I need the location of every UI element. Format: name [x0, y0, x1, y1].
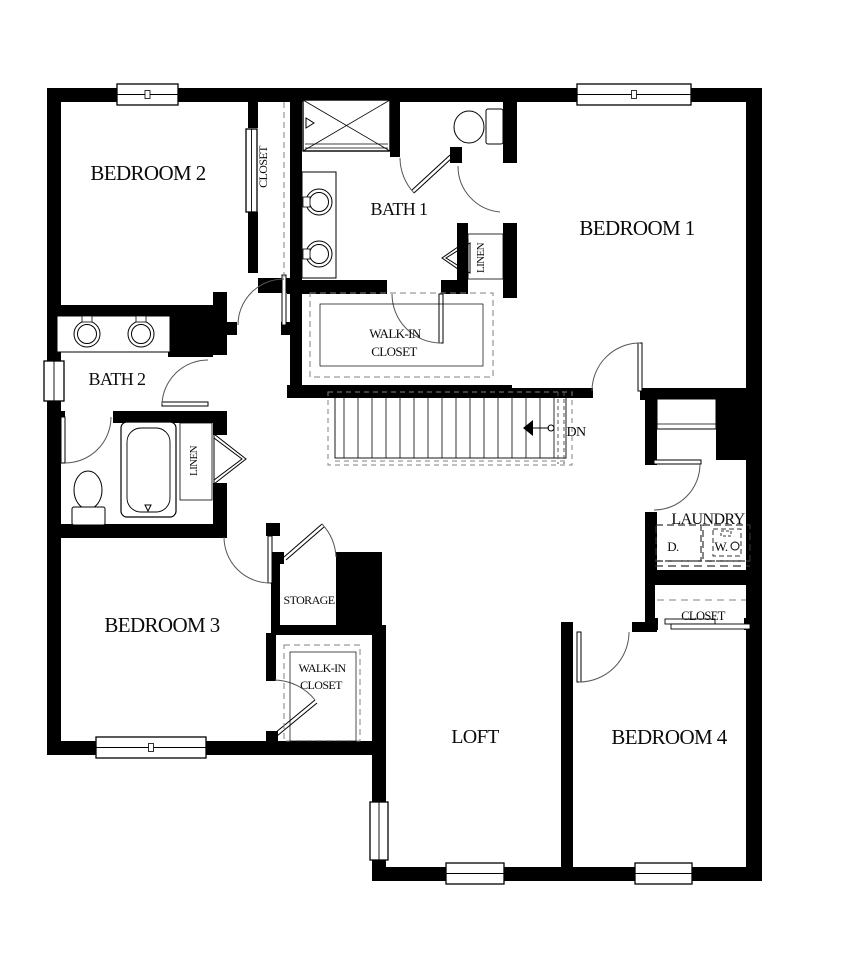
- door-leaf-laundry: [654, 460, 701, 464]
- wall-hall-left-mid: [213, 411, 227, 435]
- room-label-loft: LOFT: [451, 726, 499, 748]
- wall-stairs-top: [287, 385, 512, 398]
- wall-toilet1-stub: [450, 147, 462, 163]
- wall-loft-bedroom4: [561, 622, 573, 881]
- door-leaf-bedroom4: [577, 632, 581, 682]
- wall-bedroom2-bottom: [47, 305, 168, 317]
- door-leaf-bath2: [162, 402, 208, 406]
- wall-closet2-stub-top: [248, 102, 258, 128]
- room-label-laundry: LAUNDRY: [671, 511, 745, 528]
- wall-laundry-left-lower: [645, 512, 657, 572]
- wall-bedroom3-door-hinge: [266, 523, 280, 536]
- wall-closet2-left-lower: [248, 212, 258, 273]
- wall-wic-upper-hinge: [441, 280, 457, 294]
- wall-laundry-bottom: [645, 570, 762, 585]
- door-arc-storage: [322, 524, 336, 557]
- door-arc-tubroom: [65, 417, 111, 463]
- room-label-bedroom-4: BEDROOM 4: [611, 725, 727, 749]
- wall-laundry-left-upper: [645, 397, 657, 465]
- wall-storage-jamb: [277, 552, 284, 564]
- door-leaf-bedroom2: [282, 275, 286, 325]
- room-label-bath-2: BATH 2: [89, 369, 146, 389]
- sink2b-faucet: [136, 316, 146, 322]
- washer-panel: [721, 531, 731, 536]
- toilet1-bowl: [454, 111, 484, 143]
- door-leaf-storage-a: [284, 524, 322, 557]
- room-label-stairs-dn: DN: [566, 425, 586, 440]
- wall-wic-lower-left: [266, 633, 276, 681]
- sink1a-faucet: [303, 197, 310, 207]
- room-label-linen-upper: LINEN: [475, 242, 487, 273]
- wall-shower-right: [390, 88, 400, 157]
- wall-center-column: [290, 98, 302, 398]
- bathtub-inner: [127, 428, 170, 512]
- wall-bedroom1-south-left: [510, 388, 593, 398]
- wic-lower-dash: [284, 645, 360, 741]
- wall-bath2-block: [168, 305, 213, 357]
- window-bedroom3-bottom-mullion: [149, 744, 154, 752]
- window-bedroom2-top-mullion: [145, 91, 150, 99]
- wall-wic-upper-top: [287, 280, 387, 294]
- wall-tubroom-top: [113, 411, 227, 423]
- vanity1-counter: [302, 172, 336, 278]
- closet4-bypass-door-2: [671, 624, 750, 629]
- wall-storage-bottom: [271, 625, 378, 635]
- door-arc-vestibule: [458, 166, 500, 212]
- laundry-cabinet: [657, 399, 716, 429]
- sink2a-faucet: [82, 316, 92, 322]
- door-leaf-bath1-a: [414, 158, 452, 193]
- toilet1-tank: [486, 109, 503, 144]
- room-label-bedroom-2: BEDROOM 2: [90, 161, 205, 185]
- door-leaf-bedroom1: [638, 343, 642, 391]
- door-arc-laundry: [654, 464, 700, 510]
- room-label-bedroom-1: BEDROOM 1: [579, 216, 694, 240]
- wall-linen-upper-right: [503, 223, 517, 298]
- room-label-walkin-upper-line1: WALK-IN: [369, 326, 422, 341]
- door-leaf-wic-lower-a: [275, 700, 315, 733]
- toilet2-tank: [72, 507, 105, 525]
- door-arc-bath1: [400, 158, 414, 193]
- wall-storage-block: [336, 552, 382, 633]
- room-label-walkin-lower-line1: WALK-IN: [298, 661, 346, 675]
- room-label-bedroom-3: BEDROOM 3: [104, 613, 219, 637]
- wall-toilet1-right: [503, 88, 517, 163]
- bifold-linen-lower-b: [214, 438, 242, 480]
- wall-bath2-bottom: [47, 524, 222, 538]
- room-label-walkin-lower-line2: CLOSET: [300, 678, 343, 692]
- room-label-bath-1: BATH 1: [371, 199, 428, 219]
- window-bedroom1-top-mullion: [632, 91, 637, 99]
- sink1b-faucet: [303, 249, 310, 259]
- wall-hall-left-upper: [213, 292, 227, 355]
- room-label-closet-bedroom4: CLOSET: [681, 609, 726, 623]
- room-label-linen-lower: LINEN: [188, 445, 200, 476]
- door-leaf-wic-upper: [439, 294, 443, 343]
- room-label-washer: W.: [714, 539, 727, 554]
- door-arc-bedroom1: [592, 343, 640, 391]
- door-arc-bath2: [162, 360, 208, 404]
- floor-plan: BEDROOM 2CLOSETBATH 1BEDROOM 1LINENWALK-…: [0, 0, 859, 963]
- door-leaf-bedroom3: [268, 536, 272, 583]
- room-label-storage: STORAGE: [284, 593, 335, 607]
- washer-knob: [731, 542, 739, 550]
- wall-exterior-right: [746, 88, 762, 881]
- wall-linen-upper-left: [457, 223, 468, 294]
- wall-laundry-chase: [716, 397, 748, 460]
- door-leaf-storage-b: [286, 527, 324, 560]
- door-leaf-bath1-b: [412, 155, 450, 190]
- toilet2-bowl: [74, 471, 102, 509]
- stairs-down-arrow: [523, 420, 533, 436]
- room-label-dryer: D.: [667, 539, 679, 554]
- door-arc-bedroom4: [579, 632, 629, 682]
- floor-plan-page: BEDROOM 2CLOSETBATH 1BEDROOM 1LINENWALK-…: [0, 0, 859, 963]
- door-leaf-wic-lower-b: [277, 703, 317, 736]
- door-leaf-tubroom: [61, 417, 65, 463]
- room-label-walkin-upper-line2: CLOSET: [371, 344, 417, 359]
- wall-bedroom4-door-stub: [632, 622, 657, 632]
- door-arc-bedroom3: [224, 537, 270, 583]
- room-label-closet-bedroom2: CLOSET: [256, 145, 270, 188]
